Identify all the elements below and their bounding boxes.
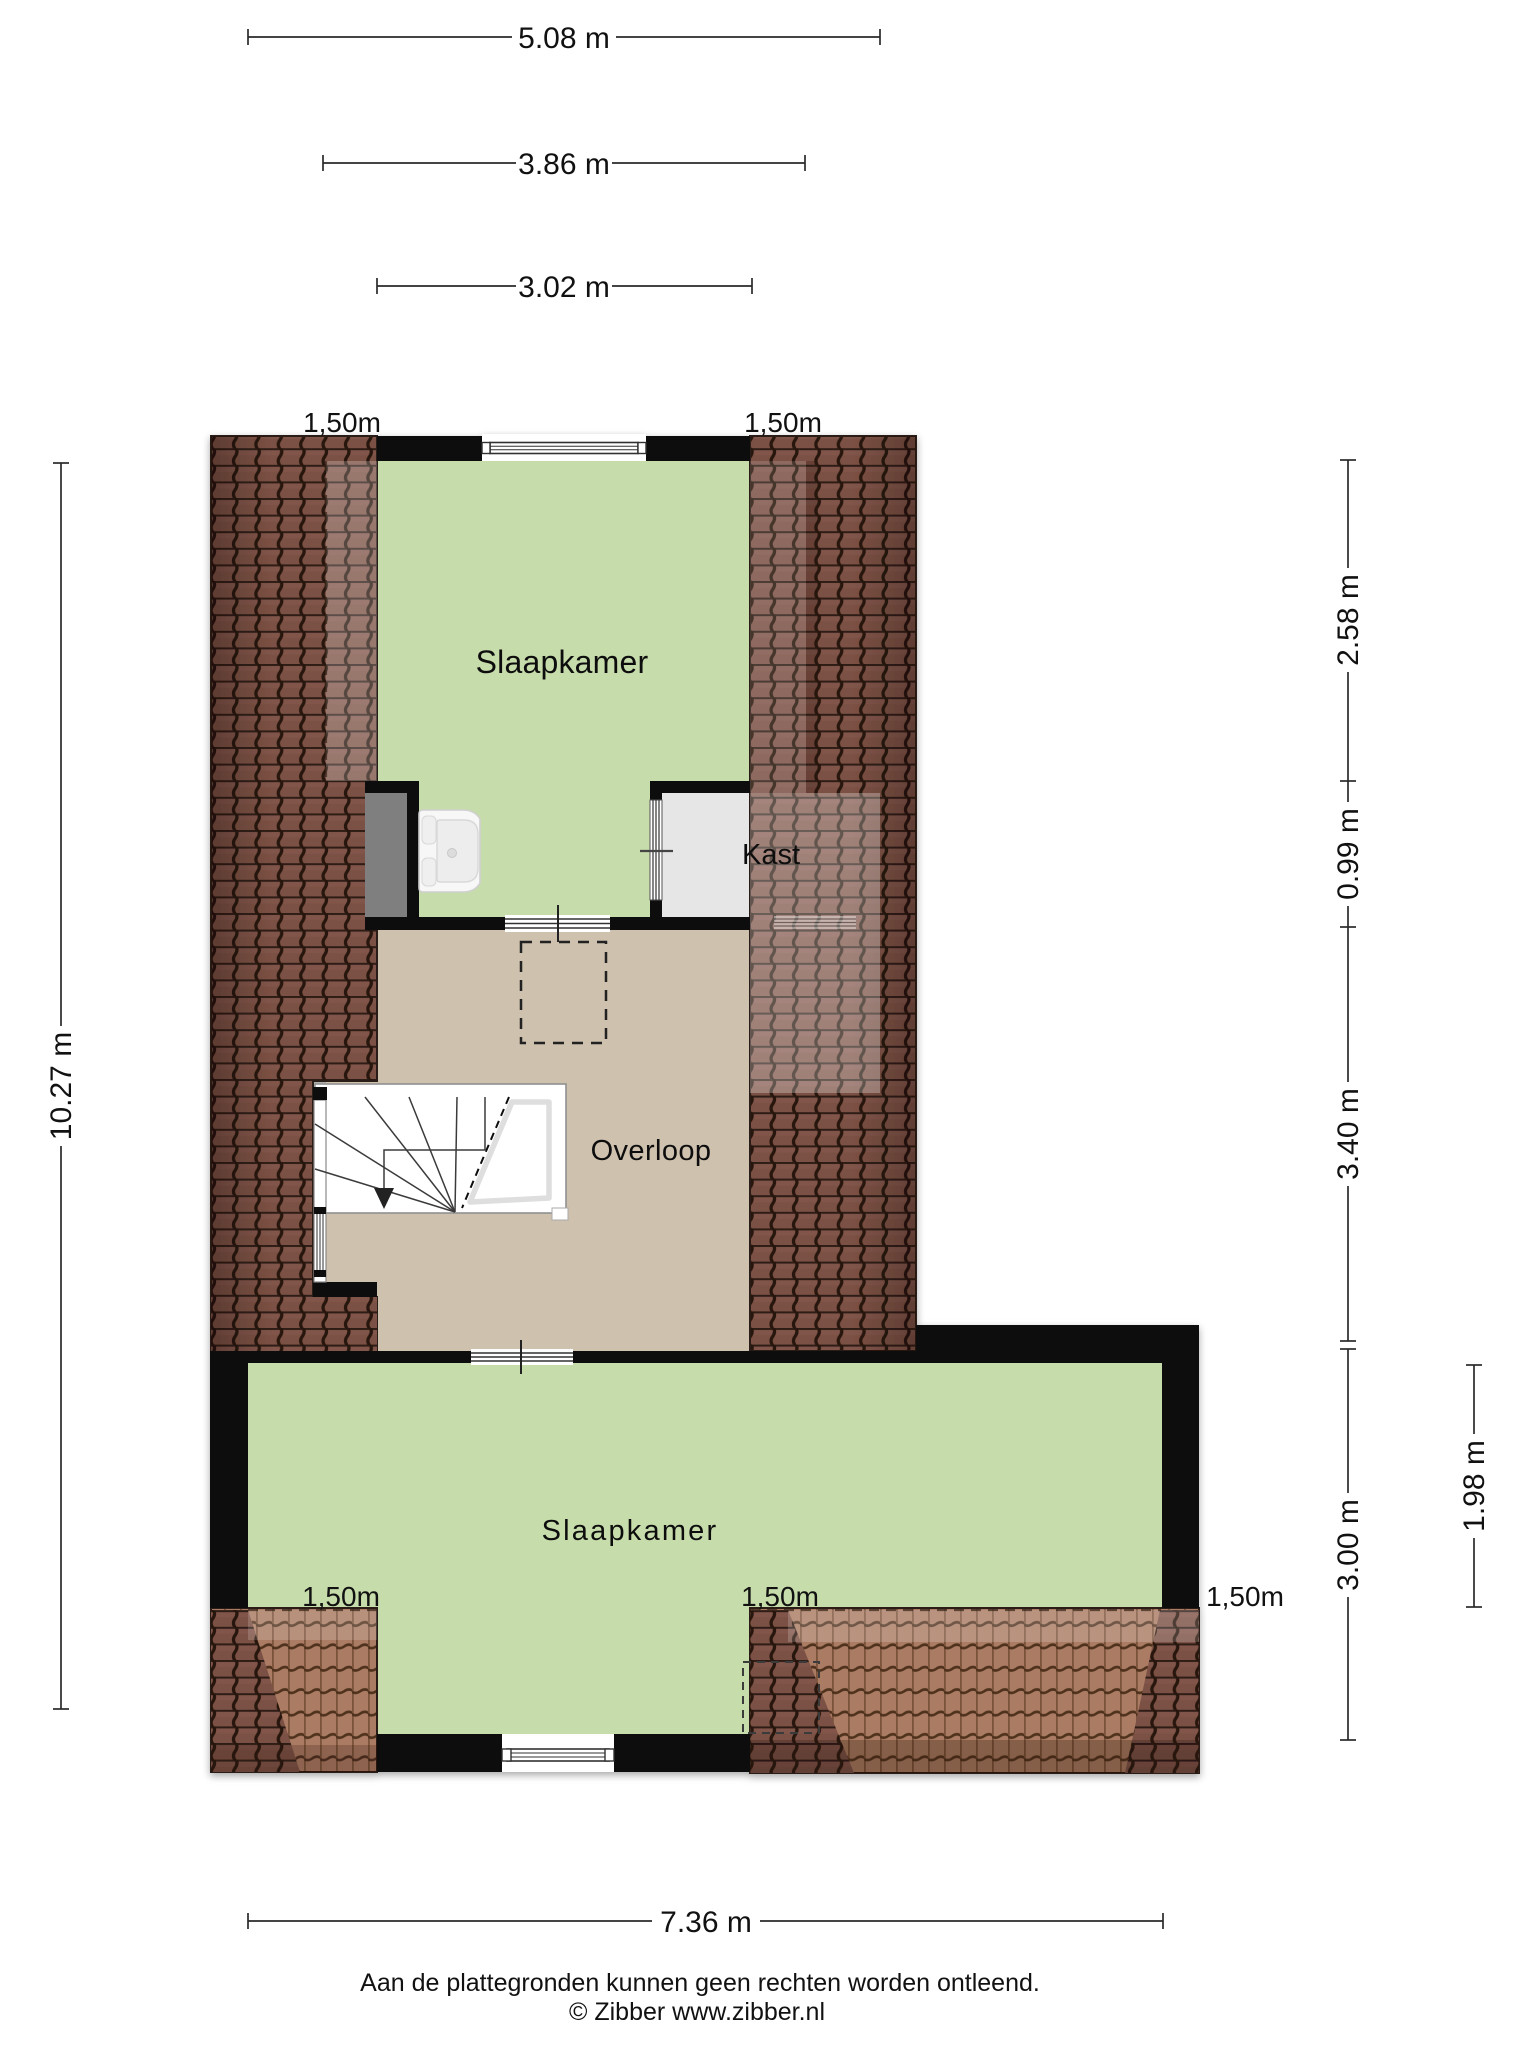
svg-text:3.86 m: 3.86 m <box>518 148 610 181</box>
svg-text:3.40 m: 3.40 m <box>1332 1088 1365 1180</box>
svg-text:© Zibber www.zibber.nl: © Zibber www.zibber.nl <box>569 1998 825 2026</box>
svg-text:3.02 m: 3.02 m <box>518 271 610 304</box>
svg-text:5.08 m: 5.08 m <box>518 22 610 55</box>
svg-text:Overloop: Overloop <box>591 1135 712 1167</box>
svg-text:Slaapkamer: Slaapkamer <box>542 1515 719 1547</box>
svg-text:2.58 m: 2.58 m <box>1332 574 1365 666</box>
svg-text:1.98 m: 1.98 m <box>1458 1440 1491 1532</box>
svg-text:1,50m: 1,50m <box>1206 1581 1284 1612</box>
svg-text:1,50m: 1,50m <box>744 407 822 438</box>
svg-text:10.27 m: 10.27 m <box>45 1032 78 1140</box>
svg-text:1,50m: 1,50m <box>741 1581 819 1612</box>
svg-text:7.36 m: 7.36 m <box>660 1906 752 1939</box>
svg-text:0.99 m: 0.99 m <box>1332 808 1365 900</box>
svg-text:Aan de plattegronden kunnen ge: Aan de plattegronden kunnen geen rechten… <box>360 1969 1040 1997</box>
svg-text:1,50m: 1,50m <box>302 1581 380 1612</box>
svg-text:3.00 m: 3.00 m <box>1332 1499 1365 1591</box>
svg-text:Slaapkamer: Slaapkamer <box>476 644 649 680</box>
svg-text:Kast: Kast <box>742 839 800 871</box>
svg-text:1,50m: 1,50m <box>303 407 381 438</box>
